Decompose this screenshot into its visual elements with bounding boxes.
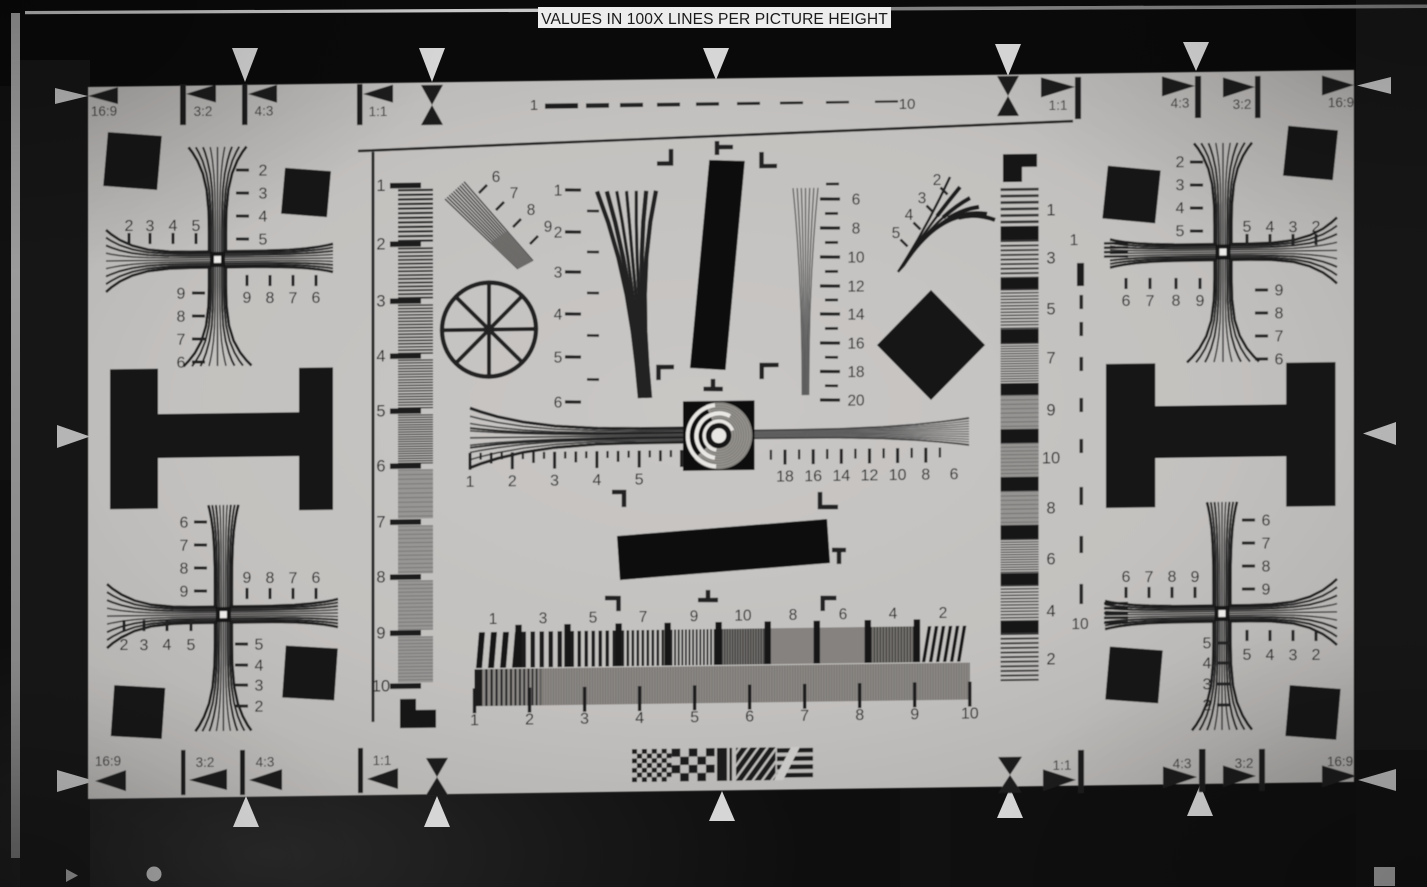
svg-text:10: 10	[1042, 449, 1060, 467]
